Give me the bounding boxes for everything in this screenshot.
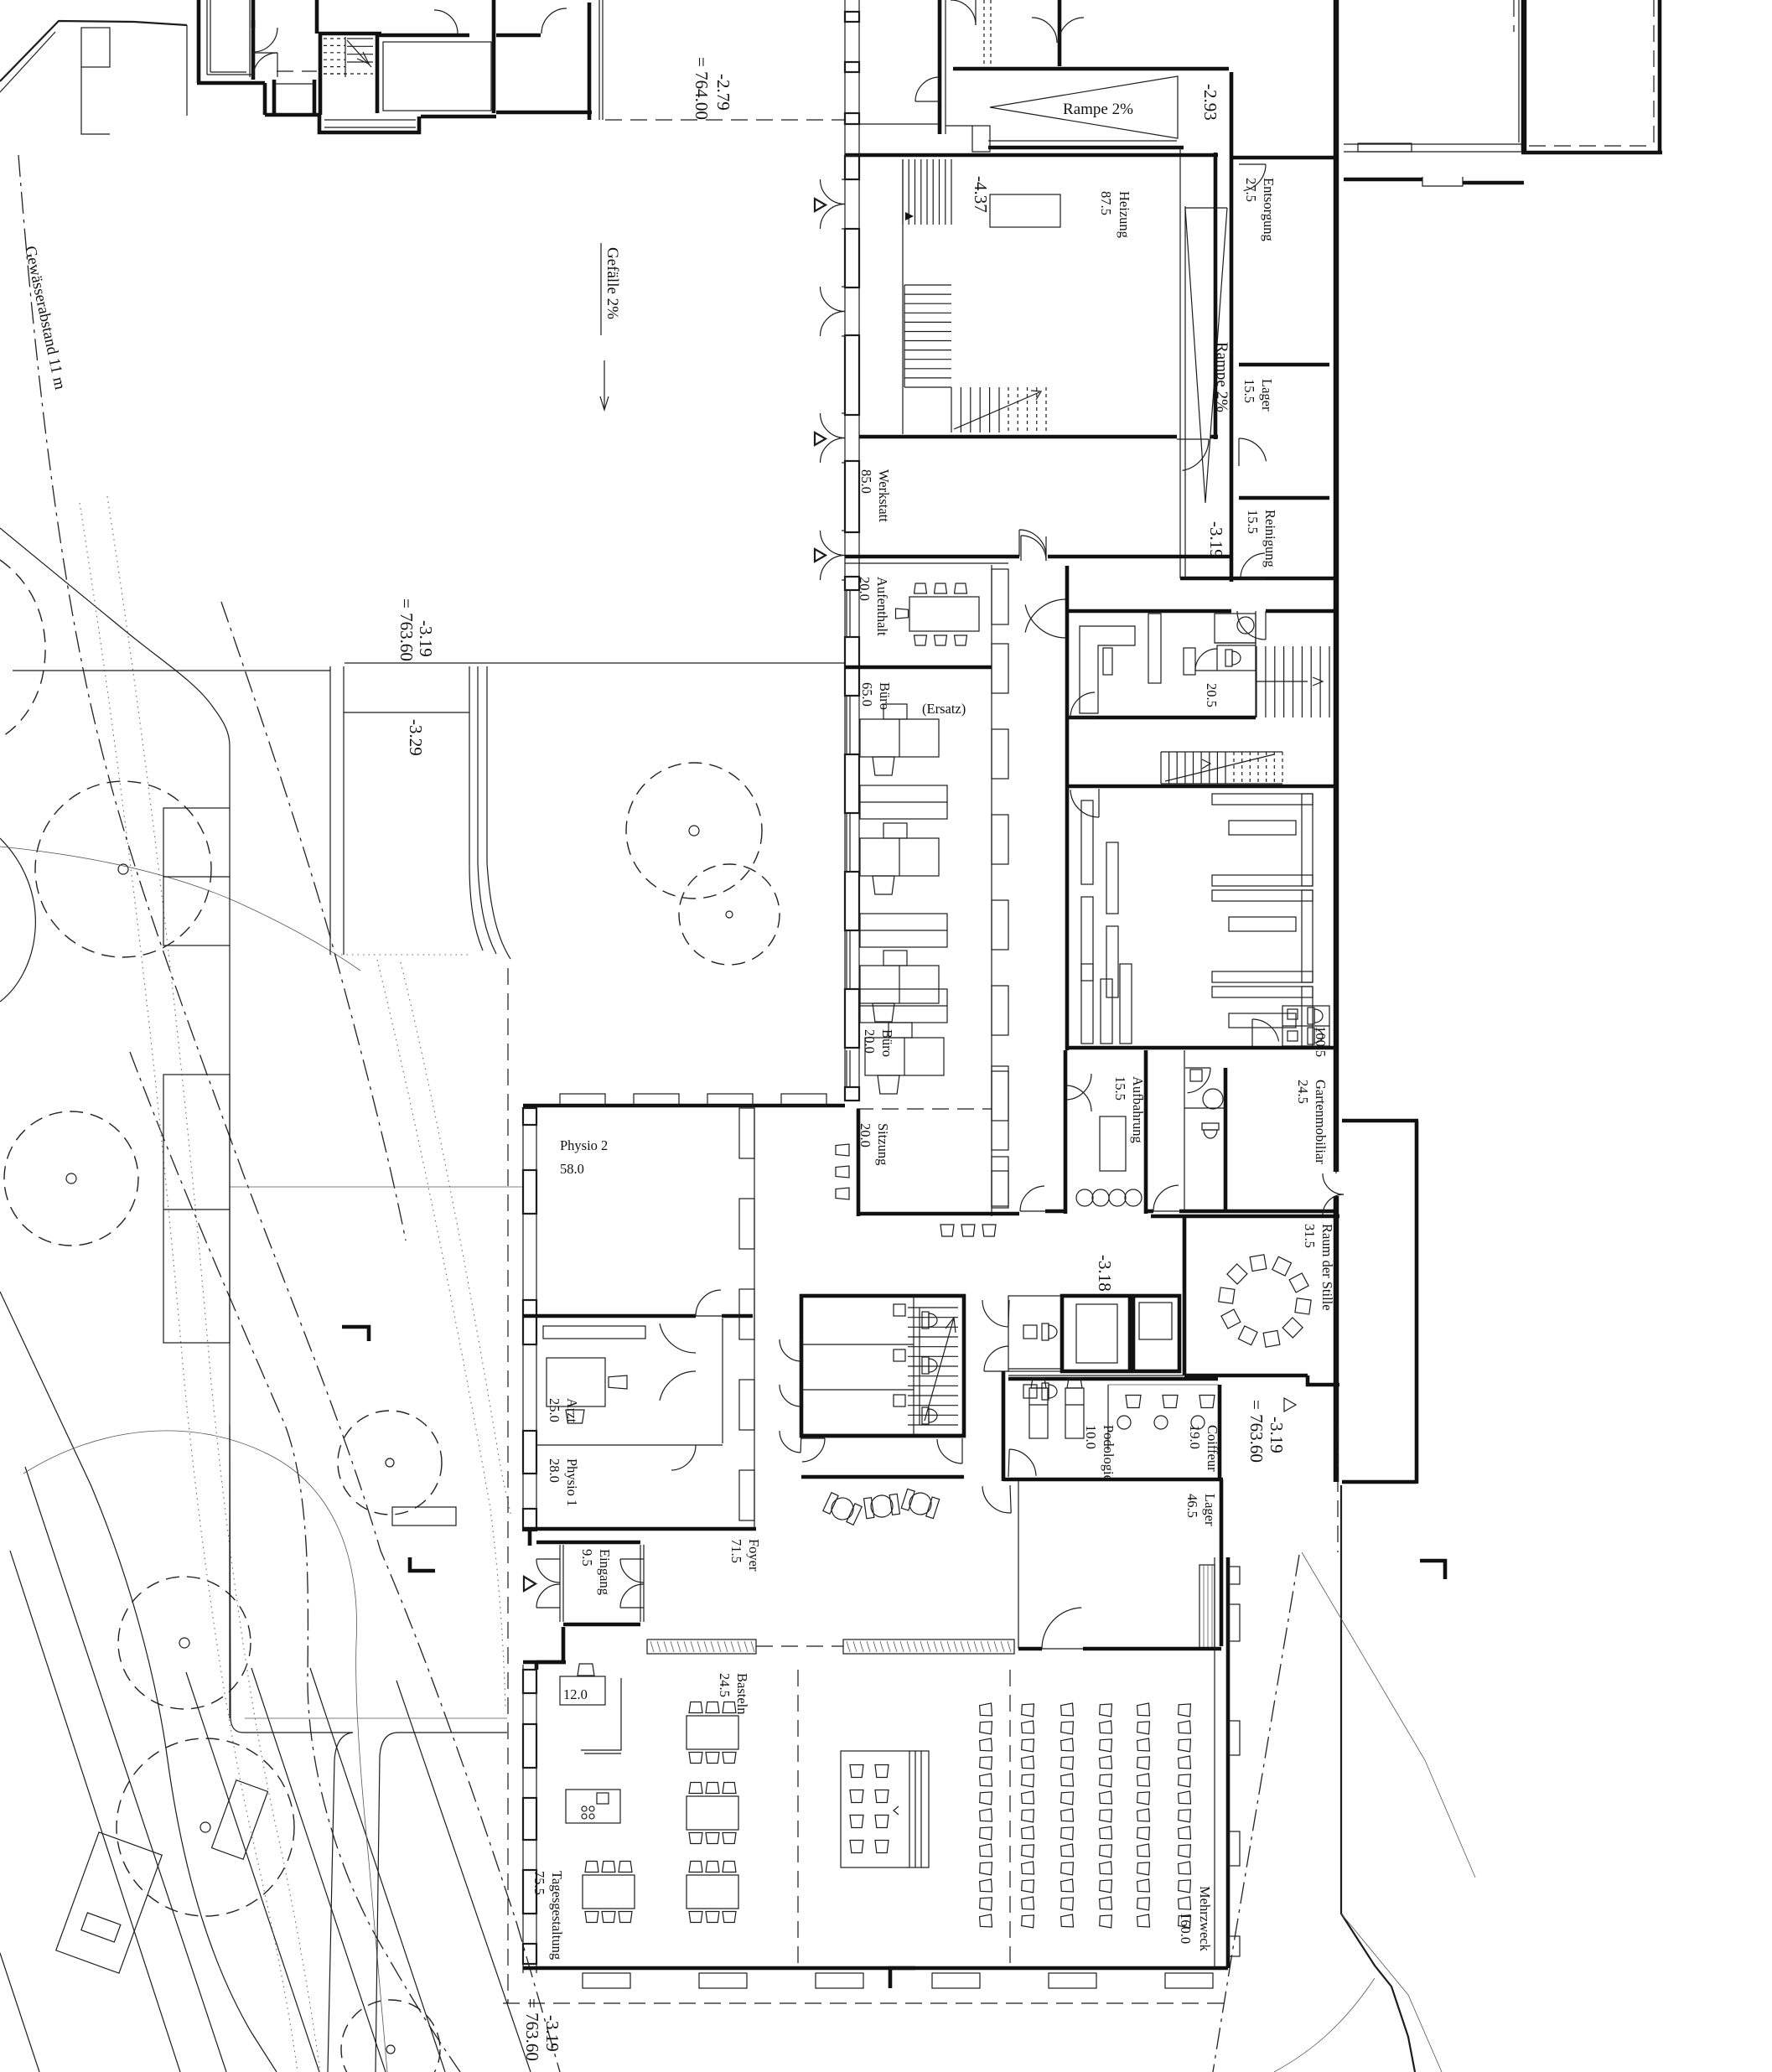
svg-text:10.0: 10.0: [1083, 1425, 1099, 1449]
svg-text:31.5: 31.5: [1302, 1224, 1318, 1248]
svg-text:Tagesgestaltung: Tagesgestaltung: [549, 1871, 565, 1960]
svg-text:65.0: 65.0: [859, 682, 875, 707]
svg-text:20.0: 20.0: [857, 577, 873, 601]
svg-text:Werkstatt: Werkstatt: [876, 469, 892, 522]
svg-text:= 763.60: = 763.60: [522, 1998, 542, 2061]
svg-text:Büro: Büro: [877, 682, 893, 710]
svg-text:Lager: Lager: [1202, 1494, 1218, 1526]
svg-text:Mehrzweck: Mehrzweck: [1197, 1886, 1213, 1952]
svg-text:15.5: 15.5: [1241, 379, 1257, 403]
svg-text:20.5: 20.5: [1204, 683, 1220, 707]
svg-text:Gewässerabstand 11 m: Gewässerabstand 11 m: [21, 245, 69, 391]
svg-text:= 763.60: = 763.60: [1246, 1400, 1267, 1463]
svg-text:-3.19: -3.19: [416, 620, 436, 657]
svg-text:Büro: Büro: [879, 1029, 895, 1057]
svg-text:Aufenthalt: Aufenthalt: [874, 577, 890, 636]
svg-text:Aufbahrung: Aufbahrung: [1130, 1076, 1146, 1143]
svg-text:= 764.00: = 764.00: [692, 57, 712, 120]
svg-text:Physio 2: Physio 2: [560, 1137, 608, 1153]
svg-text:(Ersatz): (Ersatz): [922, 701, 966, 717]
svg-text:Entsorgung: Entsorgung: [1261, 178, 1277, 241]
svg-text:100.5: 100.5: [1313, 1026, 1329, 1057]
svg-text:12.0: 12.0: [563, 1686, 588, 1702]
svg-text:15.5: 15.5: [1245, 510, 1261, 534]
svg-text:Sitzung: Sitzung: [875, 1123, 891, 1165]
svg-text:-3.29: -3.29: [406, 719, 426, 756]
svg-text:-3.19: -3.19: [1206, 521, 1226, 558]
svg-text:Gefälle 2%: Gefälle 2%: [604, 247, 621, 319]
svg-text:20.0: 20.0: [858, 1123, 873, 1147]
svg-text:Rampe 2%: Rampe 2%: [1063, 101, 1133, 118]
svg-text:75.5: 75.5: [531, 1871, 547, 1895]
svg-text:85.0: 85.0: [858, 469, 874, 494]
svg-text:20.0: 20.0: [862, 1029, 878, 1054]
svg-text:-3.19: -3.19: [542, 2015, 562, 2052]
svg-text:Reinigung: Reinigung: [1262, 510, 1278, 567]
svg-text:71.5: 71.5: [728, 1539, 744, 1563]
svg-text:87.5: 87.5: [1098, 191, 1114, 215]
svg-text:Physio 1: Physio 1: [564, 1458, 580, 1506]
svg-text:15.5: 15.5: [1112, 1076, 1128, 1101]
svg-text:Eingang: Eingang: [597, 1549, 613, 1595]
svg-text:24.5: 24.5: [1295, 1080, 1311, 1104]
svg-text:-4.37: -4.37: [971, 176, 991, 213]
svg-text:-3.18: -3.18: [1095, 1255, 1115, 1292]
svg-text:25.0: 25.0: [547, 1398, 562, 1422]
svg-text:28.0: 28.0: [547, 1458, 562, 1483]
svg-text:58.0: 58.0: [560, 1161, 584, 1177]
svg-text:Gartenmobiliar: Gartenmobiliar: [1313, 1080, 1329, 1164]
svg-text:Heizung: Heizung: [1117, 191, 1132, 238]
svg-text:-2.93: -2.93: [1200, 84, 1220, 121]
svg-text:9.5: 9.5: [579, 1549, 595, 1567]
svg-text:24.5: 24.5: [717, 1673, 733, 1697]
svg-text:46.5: 46.5: [1184, 1494, 1200, 1518]
svg-text:Foyer: Foyer: [746, 1539, 762, 1572]
svg-text:= 763.60: = 763.60: [396, 598, 417, 661]
svg-text:Raum der Stille: Raum der Stille: [1319, 1224, 1335, 1311]
svg-text:-2.79: -2.79: [713, 74, 733, 111]
svg-text:Arzt: Arzt: [564, 1398, 580, 1423]
svg-text:Lager: Lager: [1259, 379, 1275, 412]
svg-text:Basteln: Basteln: [734, 1673, 750, 1715]
svg-text:160.0: 160.0: [1178, 1913, 1194, 1944]
svg-text:-3.19: -3.19: [1267, 1417, 1287, 1453]
